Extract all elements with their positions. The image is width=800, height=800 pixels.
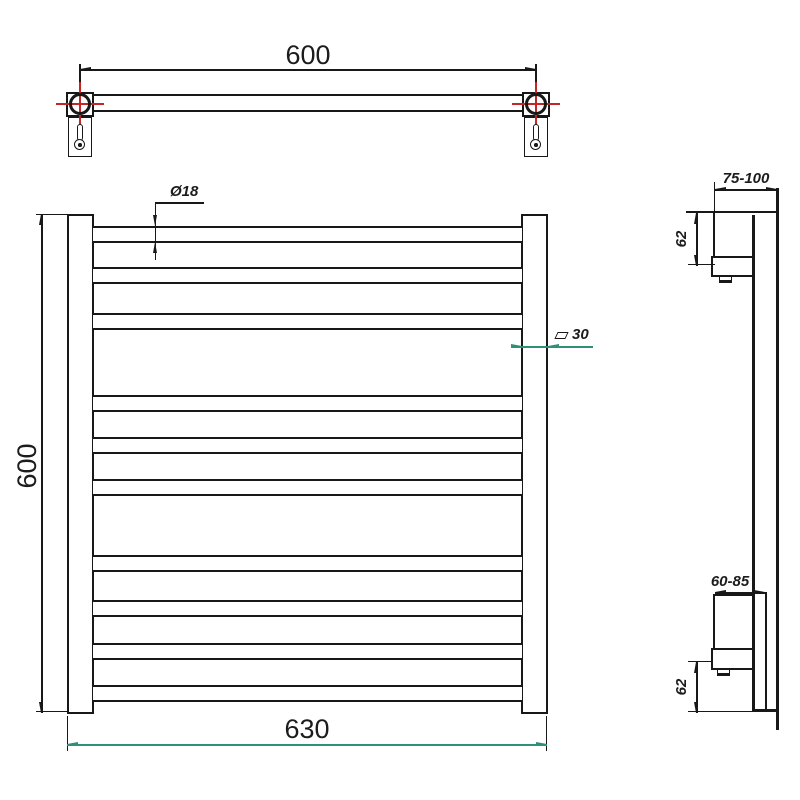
right-mounting-circle [525, 93, 547, 115]
rung-4 [93, 395, 522, 412]
top-bracket-top-line [686, 211, 779, 213]
left-keyhole-dot [78, 143, 82, 147]
rung-2 [93, 267, 522, 284]
bottom-62-arrow-bottom [694, 702, 698, 713]
technical-drawing-canvas: 600 600 [0, 0, 800, 800]
top-offset-arrow-right [766, 187, 777, 191]
bottom-bracket-top-line [713, 594, 754, 596]
top-dim-arrow-left [80, 67, 91, 71]
front-width-label-630: 630 [269, 714, 345, 745]
bottom-bracket-arm-bottom [713, 648, 754, 650]
profile-arrow-right [548, 344, 559, 348]
bottom-bracket-screw [717, 669, 730, 676]
top-bracket-arm-bottom [713, 256, 754, 258]
post-inner-line [765, 592, 767, 712]
front-height-arrow-bottom [39, 702, 43, 713]
top-bracket-clamp-left [711, 256, 713, 277]
profile-label: 30 [572, 326, 589, 343]
bottom-62-ext-top [688, 661, 713, 662]
bottom-62-arrow-top [694, 662, 698, 673]
post-side-line [752, 215, 755, 712]
front-height-label-600: 600 [13, 426, 41, 506]
front-width-arrow-right [536, 742, 547, 746]
profile-arrow-left [511, 344, 522, 348]
right-post [521, 214, 548, 714]
rung-7 [93, 555, 522, 572]
top-offset-label: 75-100 [706, 170, 786, 187]
top-bracket-screw [719, 276, 732, 283]
top-dim-label-600: 600 [270, 40, 346, 71]
bottom-bracket-arm-left [713, 594, 715, 650]
top-bracket-clamp-bottom [711, 275, 754, 277]
rung-1 [93, 226, 522, 243]
left-mounting-circle [69, 93, 91, 115]
rung-9 [93, 643, 522, 660]
bottom-offset-label: 60-85 [690, 573, 770, 590]
rung-8 [93, 600, 522, 617]
tube-dia-label: Ø18 [170, 183, 198, 200]
top-62-label: 62 [674, 219, 690, 259]
bottom-offset-arrow-left [715, 590, 726, 594]
top-62-arrow-top [694, 213, 698, 224]
tube-dia-leader-h [155, 202, 204, 204]
right-keyhole-dot [534, 143, 538, 147]
bottom-offset-arrow-right [754, 590, 765, 594]
front-width-arrow-left [67, 742, 78, 746]
post-bottom-cap [752, 709, 779, 712]
rung-6 [93, 479, 522, 496]
tube-dia-arrow-top [153, 215, 157, 226]
rung-3 [93, 313, 522, 330]
rung-10 [93, 685, 522, 702]
top-bracket-arm-left [713, 211, 715, 258]
tube-dia-arrow-bottom [153, 242, 157, 253]
bottom-62-label: 62 [674, 667, 690, 707]
wall-line [776, 188, 779, 730]
bottom-bracket-clamp-left [711, 648, 713, 670]
top-62-ext [688, 264, 715, 265]
left-post [67, 214, 94, 714]
square-profile-icon [554, 332, 568, 339]
front-height-arrow-top [39, 214, 43, 225]
rung-5 [93, 437, 522, 454]
rail-bar [94, 94, 522, 112]
top-offset-arrow-left [715, 187, 726, 191]
top-dim-arrow-right [525, 67, 536, 71]
top-62-arrow-bottom [694, 255, 698, 266]
